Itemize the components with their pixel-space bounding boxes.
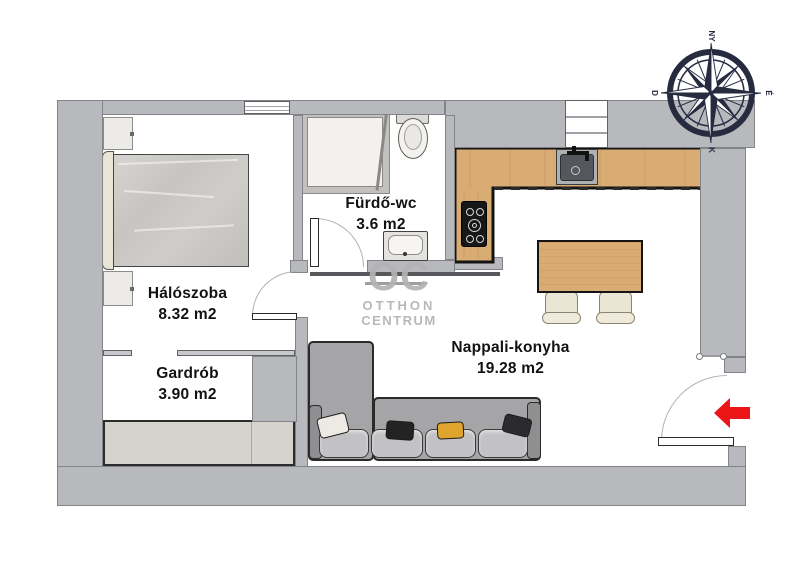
compass-rose: NY É K D [648,30,774,156]
dining-table [537,240,643,293]
wall-divider-left [103,350,132,356]
compass-label-bottom: K [707,147,716,153]
room-label-living-kitchen: Nappali-konyha 19.28 m2 [428,337,593,379]
room-area-wardrobe: 3.90 m2 [105,384,270,405]
compass-label-left: D [650,90,659,96]
faucet-handle [572,146,576,152]
wall-left [57,100,103,506]
kitchen-window [565,100,608,148]
dining-chair-1-back [542,312,581,324]
room-area-bedroom: 8.32 m2 [105,304,270,325]
wardrobe-closet [103,420,295,466]
entrance-hinge-left [696,353,703,360]
wall-bottom [57,466,746,506]
sofa-pillow-yellow [437,421,465,439]
compass-label-right: É [764,90,773,96]
floor-plan: Hálószoba 8.32 m2 Gardrób 3.90 m2 Fürdő-… [0,0,800,565]
nightstand-top [103,117,133,150]
faucet-spout [585,151,589,161]
wall-right-notch [724,357,746,373]
bed-mattress [113,154,249,267]
room-name-bedroom: Hálószoba [105,283,270,304]
watermark-line2: CENTRUM [347,313,451,328]
room-name-living-kitchen: Nappali-konyha [428,337,593,358]
upper-cabinet-dashes [494,187,700,190]
room-label-bathroom: Fürdő-wc 3.6 m2 [311,193,451,235]
wall-bathroom-right [445,115,455,260]
room-label-bedroom: Hálószoba 8.32 m2 [105,283,270,325]
room-name-wardrobe: Gardrób [105,363,270,384]
wall-right [700,148,746,357]
watermark-line1: OTTHON [347,298,451,313]
wall-right-below-door [728,446,746,467]
wall-bedroom-bathroom [293,115,303,268]
room-label-wardrobe: Gardrób 3.90 m2 [105,363,270,405]
entrance-arrow-icon [714,398,750,428]
watermark-logo: OC [347,258,451,296]
compass-label-top: NY [707,30,716,42]
entrance-hinge-right [720,353,727,360]
room-area-living-kitchen: 19.28 m2 [428,358,593,379]
sofa-pillow-black-1 [385,420,414,441]
otthon-centrum-watermark: OC OTTHON CENTRUM [347,258,451,328]
bedroom-window [244,101,290,114]
room-name-bathroom: Fürdő-wc [311,193,451,214]
dining-chair-2-back [596,312,635,324]
cooktop [461,201,487,247]
entrance-door-leaf [658,437,734,446]
room-area-bathroom: 3.6 m2 [311,214,451,235]
toilet-bowl-inner [404,124,422,150]
